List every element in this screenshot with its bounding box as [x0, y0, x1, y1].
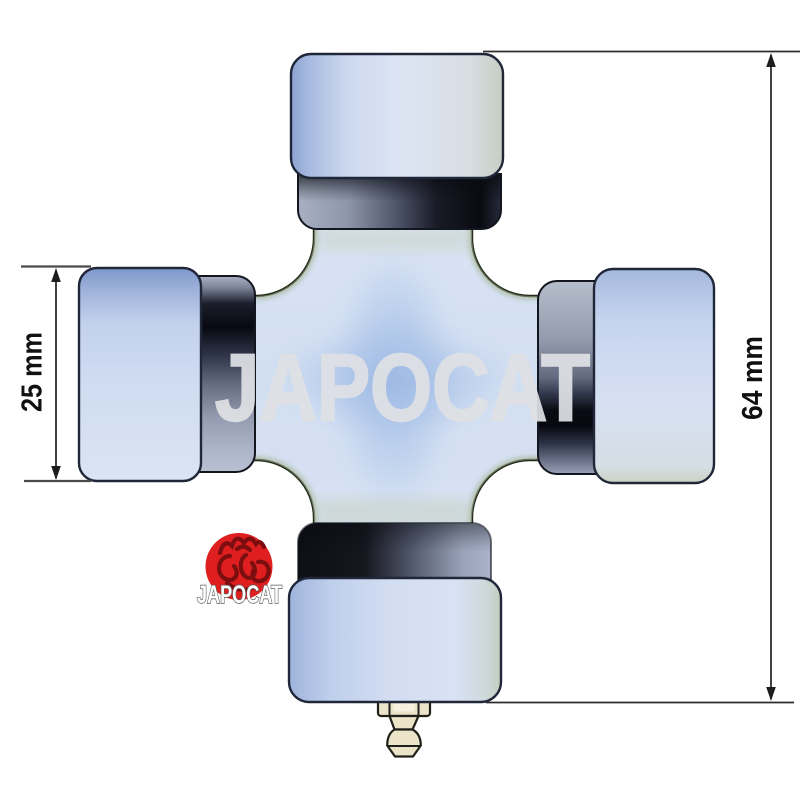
svg-text:JAPOCAT: JAPOCAT [197, 581, 282, 609]
svg-text:64 mm: 64 mm [737, 336, 769, 420]
svg-text:JAPOCAT: JAPOCAT [215, 335, 590, 441]
svg-text:25 mm: 25 mm [17, 332, 49, 412]
